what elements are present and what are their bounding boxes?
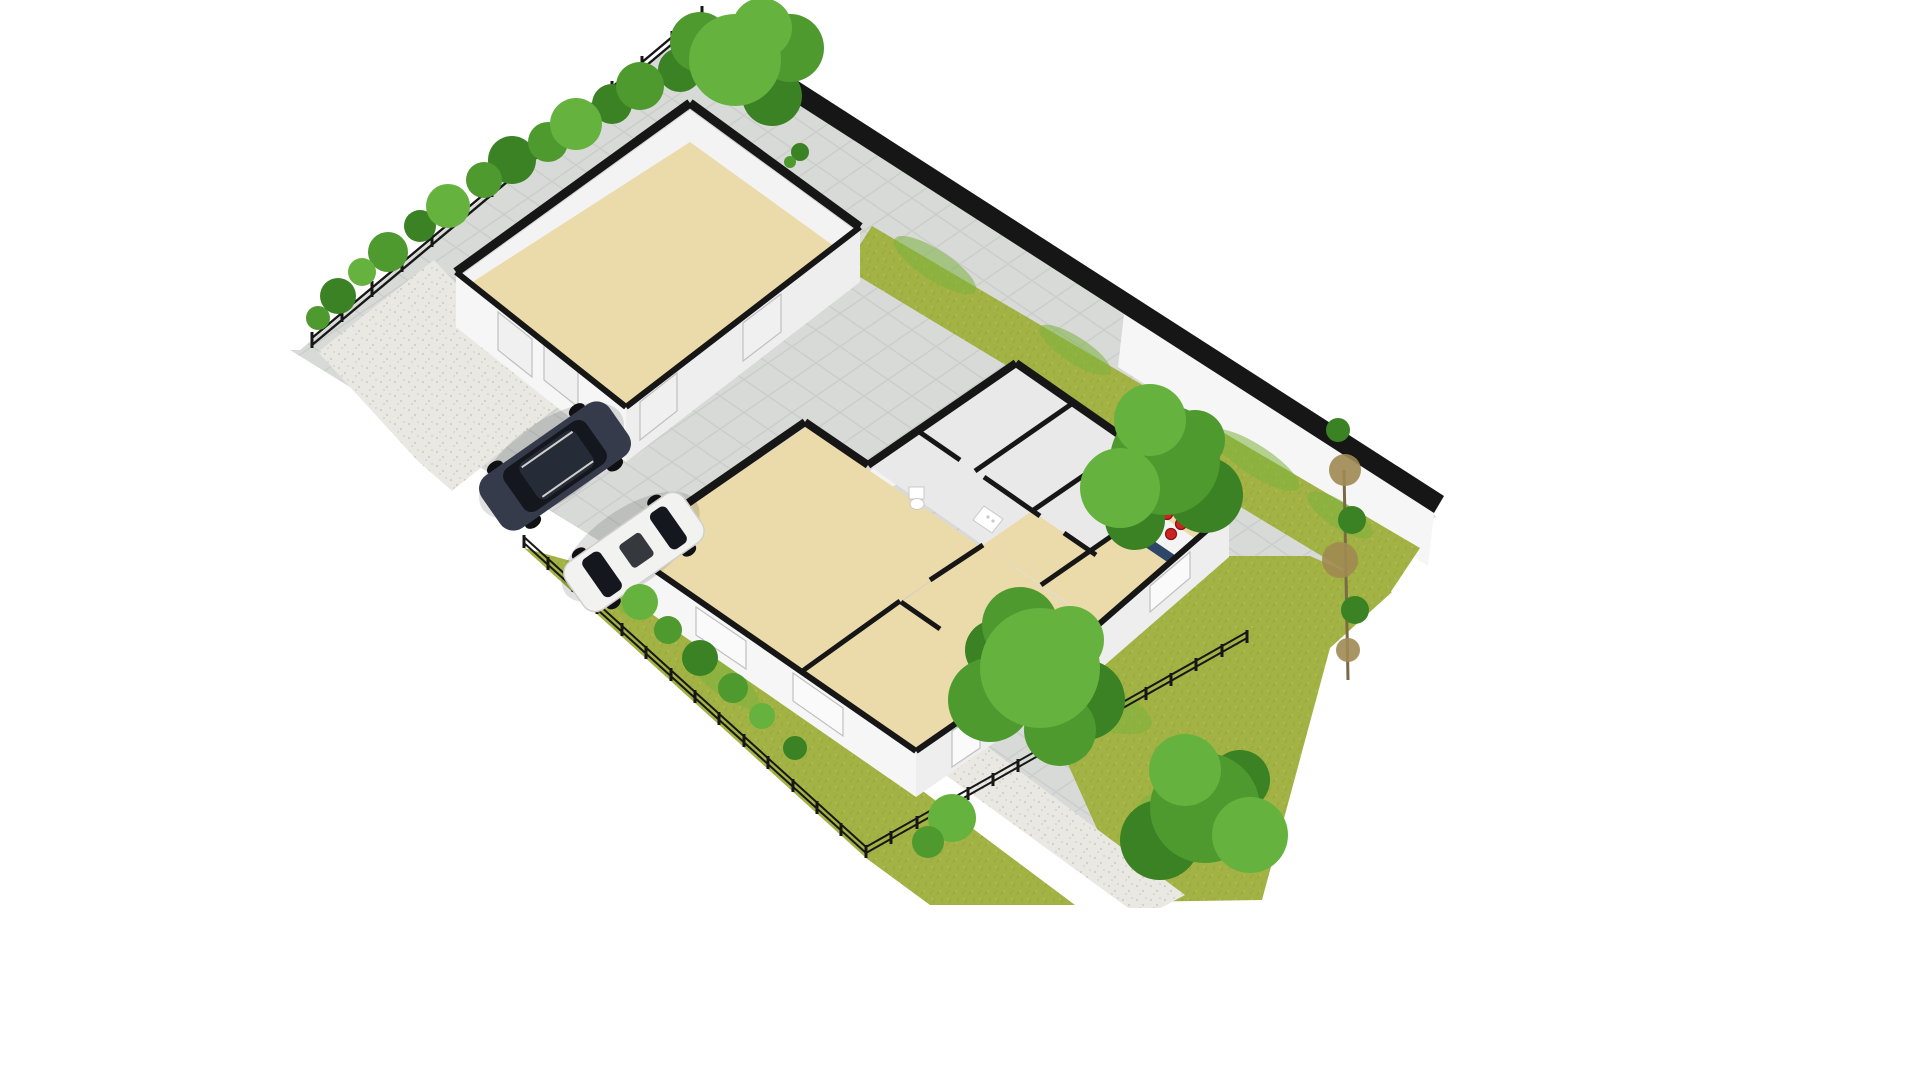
floor-plan-canvas <box>0 0 1920 1080</box>
floor-plan-svg <box>0 0 1920 1080</box>
toilet-fixture <box>909 487 924 510</box>
